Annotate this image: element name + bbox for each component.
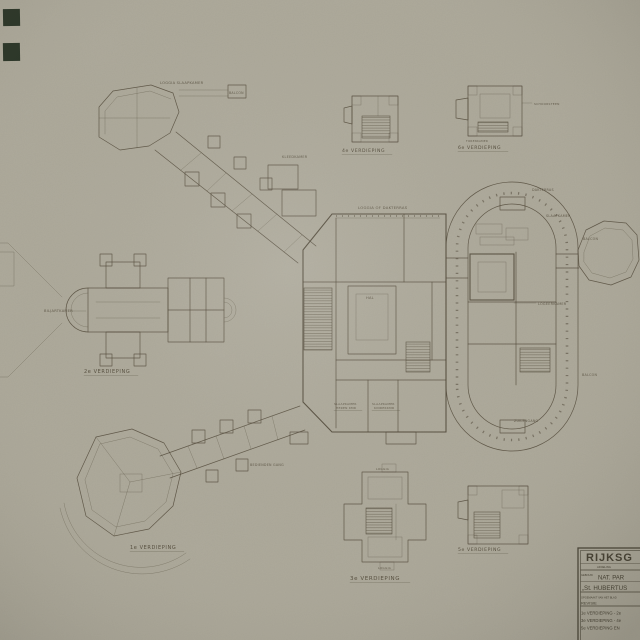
vignette-overlay [0,0,640,640]
floorplan-drawing: LOGGIA SLAAPKAMER BALCON KLEEDKAMER LOGG… [0,0,640,640]
drawing-sheet: LOGGIA SLAAPKAMER BALCON KLEEDKAMER LOGG… [0,0,640,640]
